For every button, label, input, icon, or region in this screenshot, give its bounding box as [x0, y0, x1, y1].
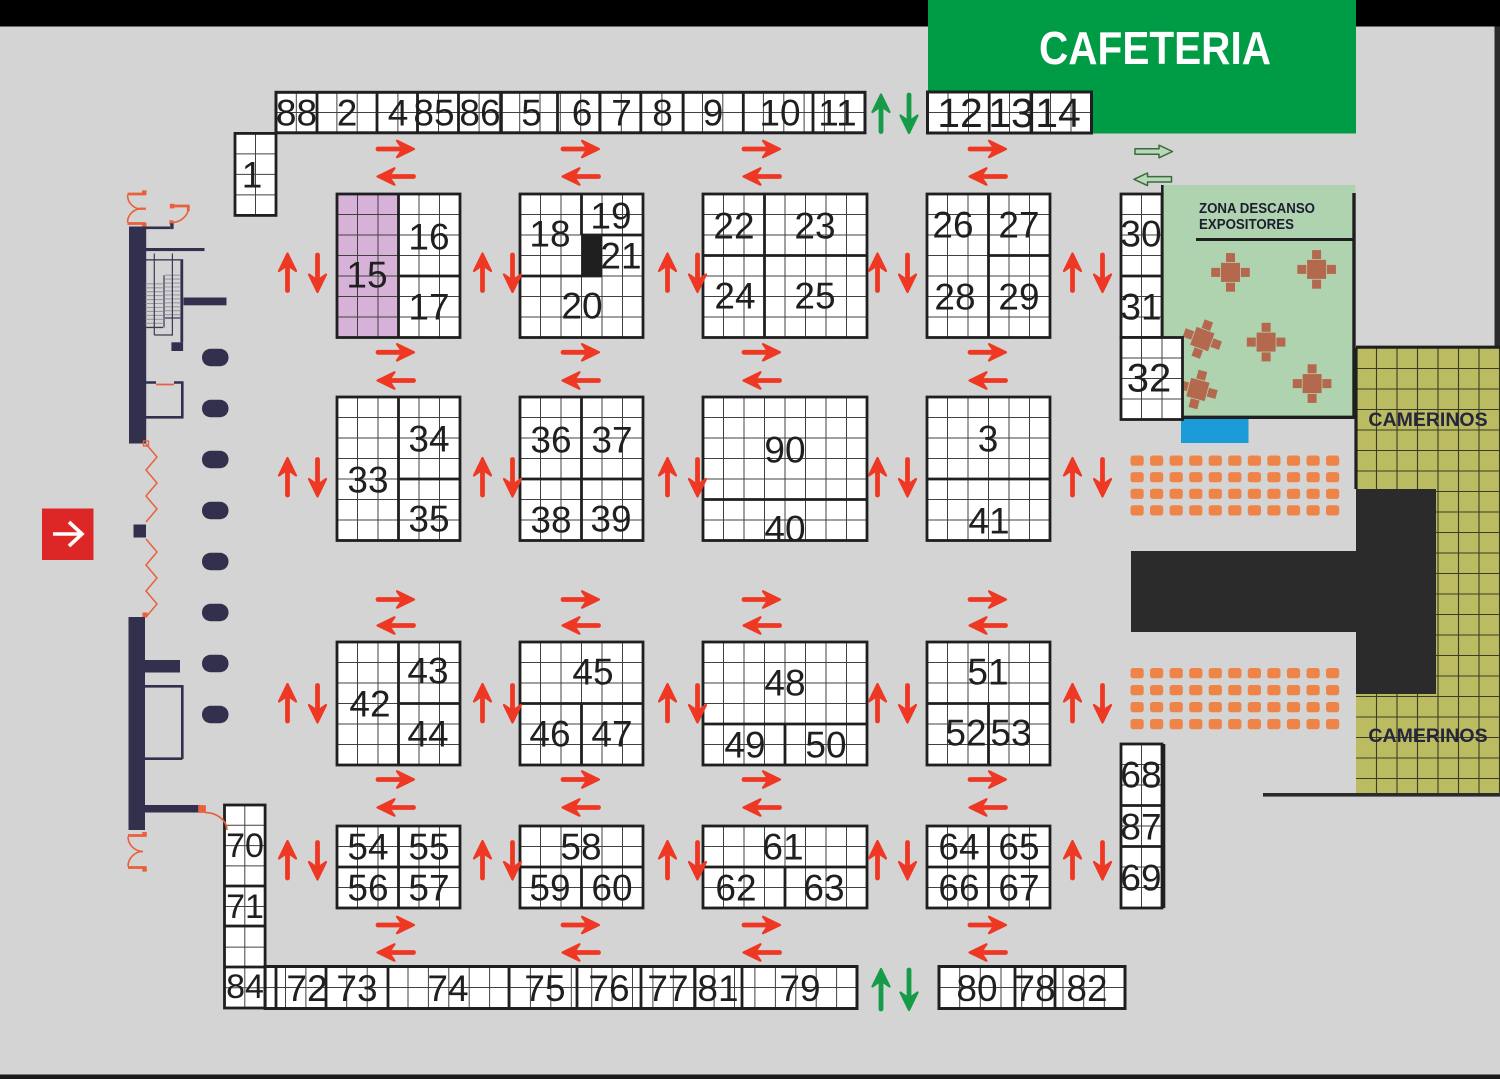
svg-text:13: 13: [988, 90, 1034, 136]
svg-text:18: 18: [529, 213, 570, 254]
svg-text:61: 61: [762, 826, 803, 867]
svg-text:CAMERINOS: CAMERINOS: [1368, 725, 1487, 747]
svg-text:17: 17: [408, 286, 449, 327]
svg-text:36: 36: [530, 419, 571, 460]
svg-text:60: 60: [591, 867, 632, 908]
svg-text:42: 42: [349, 683, 390, 724]
svg-text:52: 52: [945, 712, 986, 753]
svg-text:27: 27: [998, 204, 1039, 245]
svg-text:80: 80: [956, 968, 997, 1009]
svg-text:90: 90: [764, 429, 805, 470]
svg-text:82: 82: [1066, 968, 1107, 1009]
svg-text:54: 54: [347, 826, 388, 867]
svg-text:44: 44: [407, 713, 448, 754]
svg-text:23: 23: [794, 205, 835, 246]
svg-text:75: 75: [524, 968, 565, 1009]
svg-text:20: 20: [561, 285, 602, 326]
svg-text:59: 59: [529, 867, 570, 908]
svg-text:46: 46: [529, 713, 570, 754]
svg-text:66: 66: [938, 867, 979, 908]
svg-text:81: 81: [697, 968, 738, 1009]
svg-text:48: 48: [764, 662, 805, 703]
svg-text:71: 71: [226, 888, 264, 926]
svg-text:73: 73: [336, 968, 377, 1009]
svg-text:11: 11: [818, 93, 856, 134]
svg-text:72: 72: [286, 968, 327, 1009]
svg-text:50: 50: [805, 724, 846, 765]
svg-text:3: 3: [978, 418, 999, 459]
svg-text:32: 32: [1127, 356, 1172, 400]
svg-text:16: 16: [408, 216, 449, 257]
svg-text:58: 58: [560, 826, 601, 867]
svg-text:68: 68: [1120, 754, 1161, 795]
svg-text:47: 47: [591, 713, 632, 754]
svg-text:6: 6: [572, 93, 593, 134]
svg-text:49: 49: [724, 724, 765, 765]
svg-text:86: 86: [459, 93, 500, 134]
svg-text:39: 39: [590, 498, 631, 539]
svg-text:29: 29: [998, 276, 1039, 317]
svg-text:24: 24: [714, 275, 755, 316]
svg-text:78: 78: [1014, 968, 1055, 1009]
svg-text:74: 74: [427, 968, 468, 1009]
svg-text:53: 53: [990, 712, 1031, 753]
svg-text:84: 84: [226, 968, 264, 1006]
svg-text:12: 12: [937, 90, 983, 136]
svg-text:26: 26: [932, 204, 973, 245]
svg-text:62: 62: [715, 867, 756, 908]
svg-text:8: 8: [652, 93, 673, 134]
svg-text:40: 40: [764, 508, 805, 549]
svg-text:57: 57: [408, 867, 449, 908]
svg-text:41: 41: [968, 500, 1009, 541]
svg-text:ZONA DESCANSO: ZONA DESCANSO: [1199, 201, 1315, 217]
svg-text:34: 34: [408, 418, 449, 459]
svg-text:22: 22: [713, 205, 754, 246]
svg-text:14: 14: [1035, 90, 1081, 136]
svg-text:56: 56: [347, 867, 388, 908]
svg-text:77: 77: [647, 968, 688, 1009]
svg-text:9: 9: [703, 93, 724, 134]
svg-text:35: 35: [408, 498, 449, 539]
svg-text:CAMERINOS: CAMERINOS: [1368, 409, 1487, 431]
svg-text:79: 79: [779, 968, 820, 1009]
svg-text:15: 15: [346, 254, 387, 295]
svg-text:CAFETERIA: CAFETERIA: [1039, 22, 1271, 74]
svg-text:21: 21: [600, 235, 641, 276]
svg-text:85: 85: [413, 93, 454, 134]
svg-text:28: 28: [934, 276, 975, 317]
svg-text:51: 51: [967, 651, 1008, 692]
svg-text:76: 76: [588, 968, 629, 1009]
svg-text:31: 31: [1120, 286, 1161, 327]
svg-text:30: 30: [1120, 213, 1161, 254]
svg-text:7: 7: [611, 93, 632, 134]
svg-text:25: 25: [794, 275, 835, 316]
svg-text:33: 33: [347, 459, 388, 500]
svg-text:1: 1: [242, 154, 263, 195]
svg-text:88: 88: [276, 93, 317, 134]
svg-text:63: 63: [803, 867, 844, 908]
svg-text:55: 55: [408, 826, 449, 867]
svg-text:37: 37: [591, 419, 632, 460]
svg-text:45: 45: [572, 651, 613, 692]
svg-text:5: 5: [521, 93, 542, 134]
svg-text:38: 38: [530, 499, 571, 540]
svg-text:4: 4: [388, 93, 409, 134]
svg-text:10: 10: [759, 93, 800, 134]
svg-text:2: 2: [337, 93, 358, 134]
svg-text:70: 70: [226, 827, 264, 865]
svg-text:64: 64: [938, 826, 979, 867]
svg-text:43: 43: [407, 650, 448, 691]
svg-text:19: 19: [590, 195, 631, 236]
svg-text:69: 69: [1120, 857, 1161, 898]
svg-text:67: 67: [998, 867, 1039, 908]
svg-text:65: 65: [998, 826, 1039, 867]
svg-text:87: 87: [1120, 806, 1161, 847]
svg-text:EXPOSITORES: EXPOSITORES: [1199, 217, 1294, 233]
